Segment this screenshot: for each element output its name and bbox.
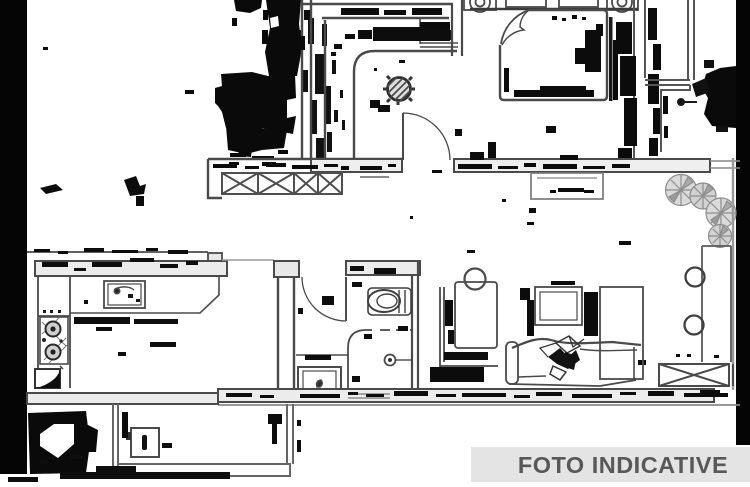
svg-text:FOTO INDICATIVE: FOTO INDICATIVE: [518, 452, 728, 478]
